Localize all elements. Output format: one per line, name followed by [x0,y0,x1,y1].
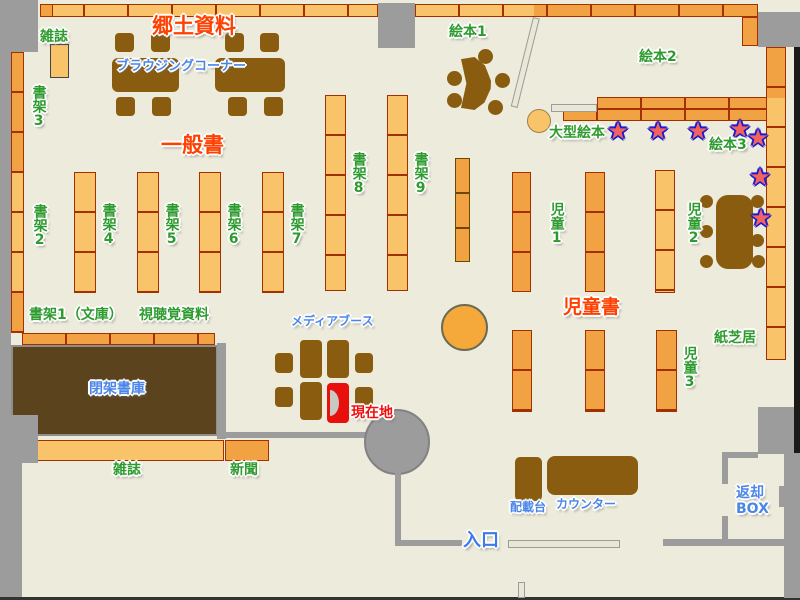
label-distribution-table: 配載台 [510,501,546,514]
label-children-3: 児童3 [681,346,697,390]
shelf-children-lower-b [585,330,605,412]
shelf-shoka1-row [22,333,215,345]
label-picture-books-2: 絵本2 [639,50,677,66]
shelf-shoka9 [387,95,408,291]
label-shelf-2: 書架2 [31,204,47,248]
chair [447,71,462,86]
shelf-shoka5 [137,172,159,293]
label-shelf-1-bunko: 書架1（文庫） [29,308,123,324]
wall-top-pillar [378,3,415,48]
library-floor-map: ★ ★ ★ ★ ★ ★ ★ 雑誌 郷土資料 ブラウジングコーナー 書架3 一般書… [0,0,800,600]
chair [152,97,171,116]
label-local-materials: 郷土資料 [152,15,236,39]
media-chair [275,387,293,407]
star-icon: ★ [747,164,773,190]
wall-left-mid-block [0,415,38,463]
shelf-left-wall-column-shoka2-3 [11,52,24,333]
chair [751,234,764,247]
media-chair [355,353,373,373]
chair [447,93,462,108]
shelf-top-right-stub [742,17,758,46]
distribution-table-desk [515,457,542,501]
label-shelf-8: 書架8 [350,152,366,196]
chair [115,33,134,52]
label-shelf-5: 書架5 [163,203,179,247]
shelf-shoka4 [74,172,96,293]
wall-left-bottom [0,463,22,598]
wall-returnbox-tab [779,486,794,507]
shelf-newspapers [225,440,269,461]
star-icon: ★ [645,118,671,144]
label-children-books: 児童書 [563,297,620,318]
label-media-booth: メディアブース [291,315,374,328]
diagonal-partition [511,17,540,108]
label-counter: カウンター [556,498,616,511]
wall-closed-stacks-right [217,343,226,439]
wall-returnbox-h1 [728,452,758,458]
star-icon: ★ [605,118,631,144]
wall-right-bottom [784,453,800,598]
chair [116,97,135,116]
chair [260,33,279,52]
label-return-box: 返却 BOX [736,486,769,517]
shelf-children-lower-a [512,330,532,412]
label-closed-stacks: 閉架書庫 [89,382,145,398]
chair [478,49,493,64]
media-booth-desk [327,340,349,378]
label-return-box-line2: BOX [736,502,769,518]
shelf-shoka6 [199,172,221,293]
label-picture-books-1: 絵本1 [449,25,487,41]
picture-book-table [461,57,491,110]
shelf-children1-a [512,172,531,292]
wall-returnbox-v2 [722,516,728,545]
shelf-children-narrow [455,158,470,262]
star-icon: ★ [745,125,771,151]
shelf-children2 [655,170,675,293]
label-shelf-6: 書架6 [225,203,241,247]
wall-entrance-left [395,540,462,546]
label-return-box-line1: 返却 [736,486,769,502]
shelf-children3 [656,330,677,412]
label-shelf-7: 書架7 [288,203,304,247]
label-shelf-9: 書架9 [412,152,428,196]
wall-to-pillar [225,432,366,438]
label-browsing-corner: ブラウジングコーナー [116,60,246,75]
star-icon: ★ [685,118,711,144]
chair [495,73,510,88]
round-table [441,304,488,351]
media-booth-desk [300,382,322,420]
shelf-magazines-bottom [36,440,224,461]
media-chair [275,353,293,373]
shelf-ehon2-row1 [597,97,767,109]
shelf-shoka8 [325,95,346,291]
chair [488,100,503,115]
chair [700,255,713,268]
chair [752,255,765,268]
label-current-location: 現在地 [351,406,393,422]
label-large-picture-books: 大型絵本 [549,126,605,142]
label-children-2: 児童2 [685,202,701,246]
shelf-top-right-row [415,4,758,17]
star-icon: ★ [748,205,774,231]
label-general-books: 一般書 [161,134,224,158]
label-audio-visual: 視聴覚資料 [139,308,209,324]
wall-top-right-corner [758,12,800,47]
label-shelf-4: 書架4 [100,203,116,247]
wall-entrance-vertical [395,470,401,545]
wall-right-dark-strip [794,47,800,483]
label-magazines-top: 雑誌 [40,30,68,46]
label-magazines-bottom: 雑誌 [113,463,141,479]
entrance-glass-wall [508,540,620,548]
label-children-1: 児童1 [548,202,564,246]
media-booth-desk [300,340,322,378]
shelf-children1-b [585,172,605,292]
media-chair [355,387,373,407]
label-picture-books-3: 絵本3 [709,138,747,154]
counter-desk [547,456,638,495]
label-shelf-3: 書架3 [30,85,46,129]
entrance-door-tick [518,582,525,598]
shelf-magazines-top [50,44,69,78]
chair [228,97,247,116]
shelf-top-left-end [40,4,53,17]
shelf-shoka7 [262,172,284,293]
label-entrance: 入口 [463,531,499,551]
large-picture-book-table [527,109,551,133]
label-newspapers: 新聞 [230,463,258,479]
diagonal-partition-foot [551,104,597,112]
chair [264,97,283,116]
wall-top-left-corner [0,0,38,52]
wall-right-mid-block [758,407,794,454]
label-kamishibai: 紙芝居 [714,331,756,347]
